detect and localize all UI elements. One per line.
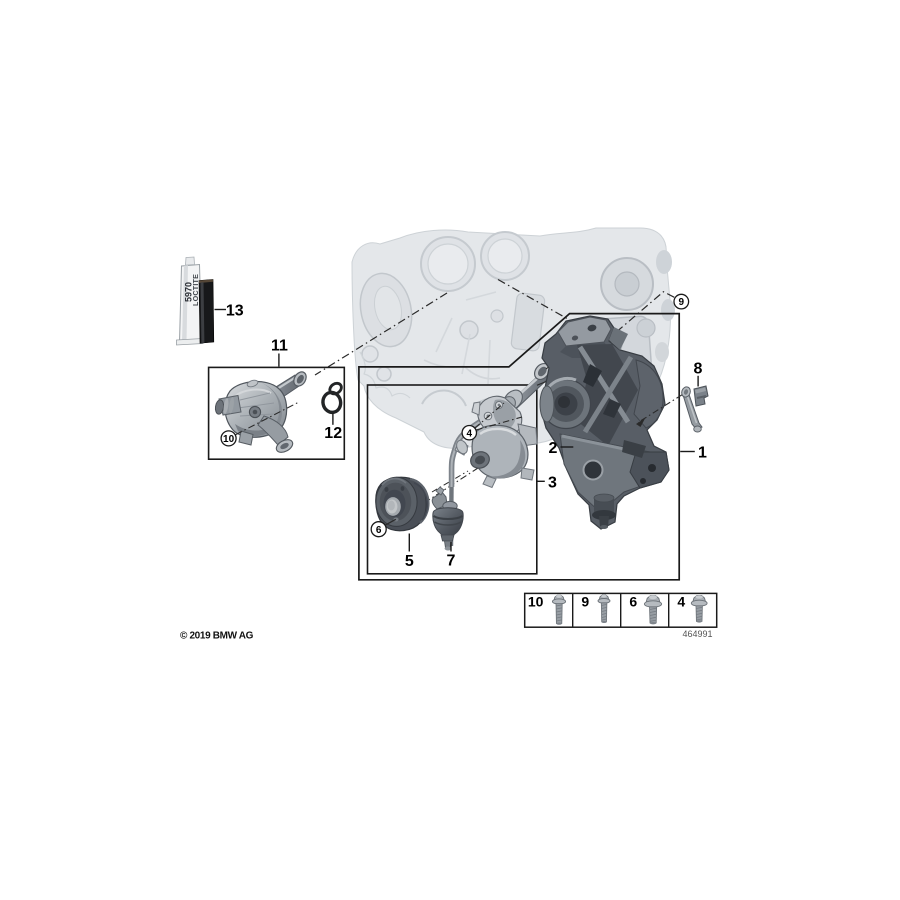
svg-text:5970: 5970: [184, 282, 194, 302]
svg-text:10: 10: [223, 434, 235, 445]
svg-text:4: 4: [677, 594, 685, 610]
svg-text:13: 13: [226, 302, 244, 319]
svg-text:5: 5: [405, 553, 414, 570]
svg-text:9: 9: [679, 297, 685, 308]
svg-text:© 2019 BMW AG: © 2019 BMW AG: [180, 631, 254, 642]
svg-text:6: 6: [376, 525, 382, 536]
svg-text:2: 2: [549, 440, 558, 457]
svg-text:9: 9: [581, 594, 589, 610]
svg-text:4: 4: [467, 428, 473, 439]
svg-text:12: 12: [324, 425, 342, 442]
svg-text:11: 11: [271, 338, 288, 355]
svg-text:8: 8: [694, 360, 703, 377]
svg-text:6: 6: [629, 594, 637, 610]
svg-text:10: 10: [528, 594, 544, 610]
svg-text:1: 1: [698, 445, 707, 462]
svg-text:3: 3: [548, 475, 557, 492]
svg-text:464991: 464991: [683, 629, 713, 639]
svg-text:7: 7: [447, 553, 456, 570]
